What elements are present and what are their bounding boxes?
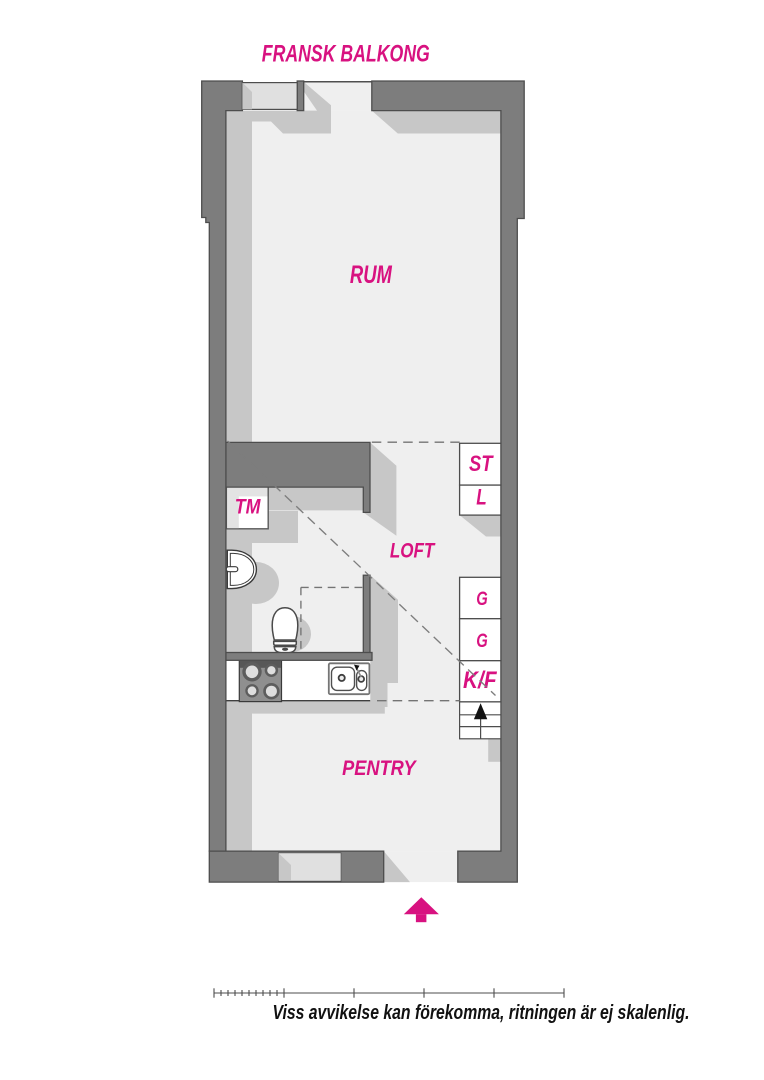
svg-text:Viss avvikelse kan förekomma,: Viss avvikelse kan förekomma, ritningen … [273,1002,690,1024]
svg-text:RUM: RUM [350,261,393,289]
svg-text:G: G [476,630,488,652]
svg-text:PENTRY: PENTRY [342,756,417,780]
svg-text:TM: TM [235,495,261,518]
svg-text:LOFT: LOFT [390,540,436,563]
svg-text:FRANSK BALKONG: FRANSK BALKONG [262,41,430,68]
svg-text:L: L [476,485,487,510]
svg-text:ST: ST [469,451,494,476]
svg-text:G: G [476,588,488,610]
